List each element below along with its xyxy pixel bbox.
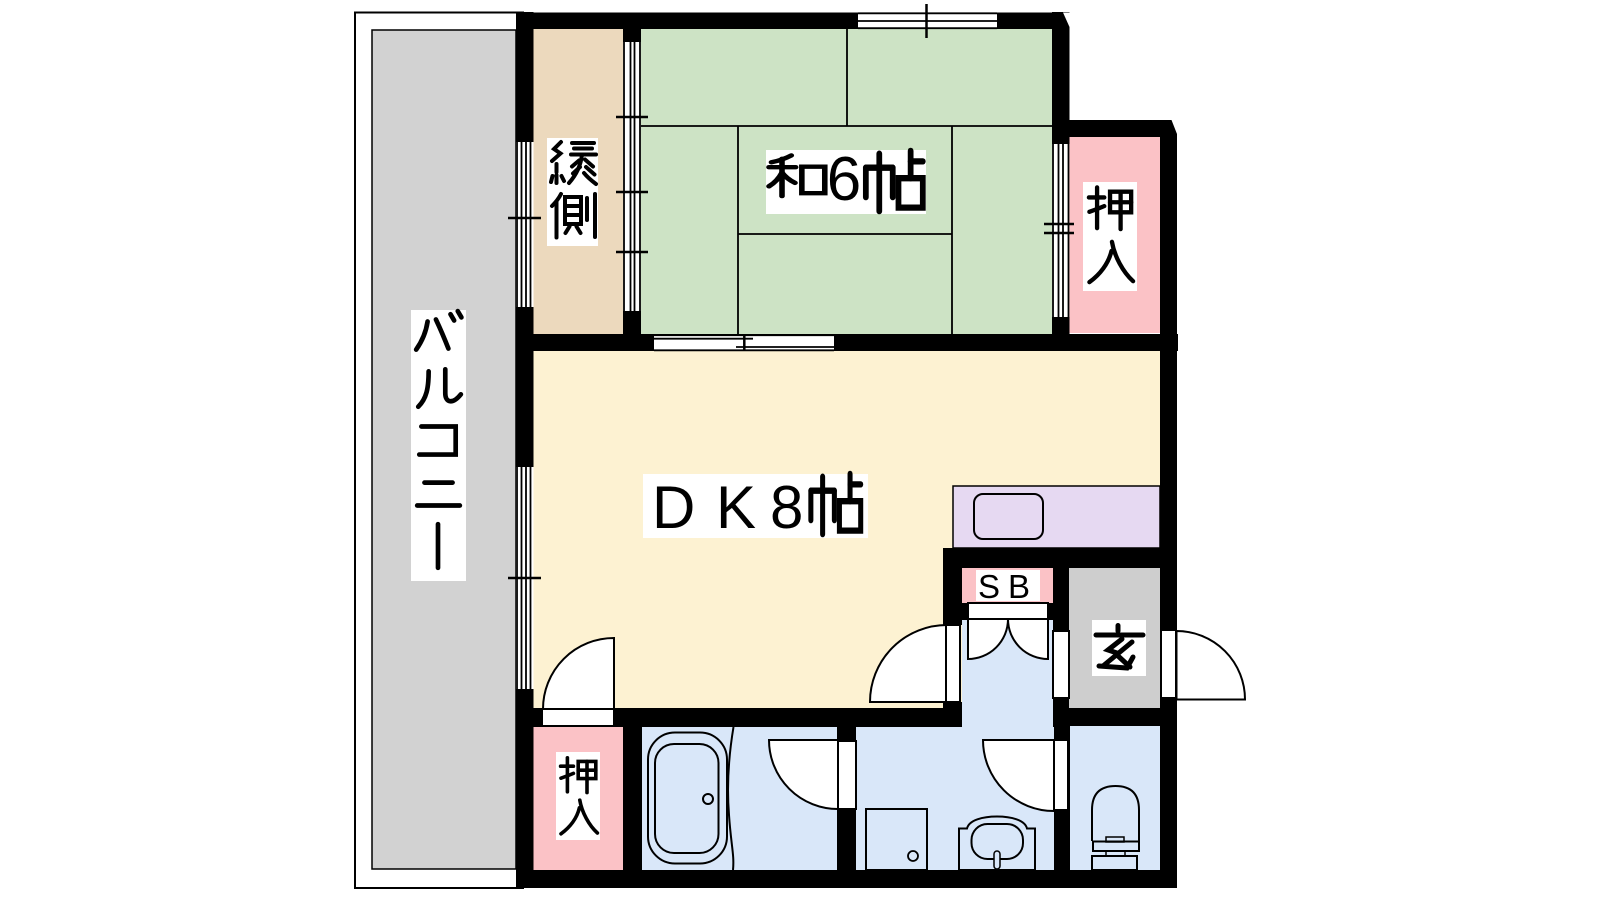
svg-text:D: D: [652, 474, 695, 541]
svg-text:8: 8: [770, 474, 803, 541]
svg-text:SB: SB: [978, 568, 1038, 605]
svg-text:6: 6: [827, 145, 861, 214]
svg-text:K: K: [716, 474, 756, 541]
